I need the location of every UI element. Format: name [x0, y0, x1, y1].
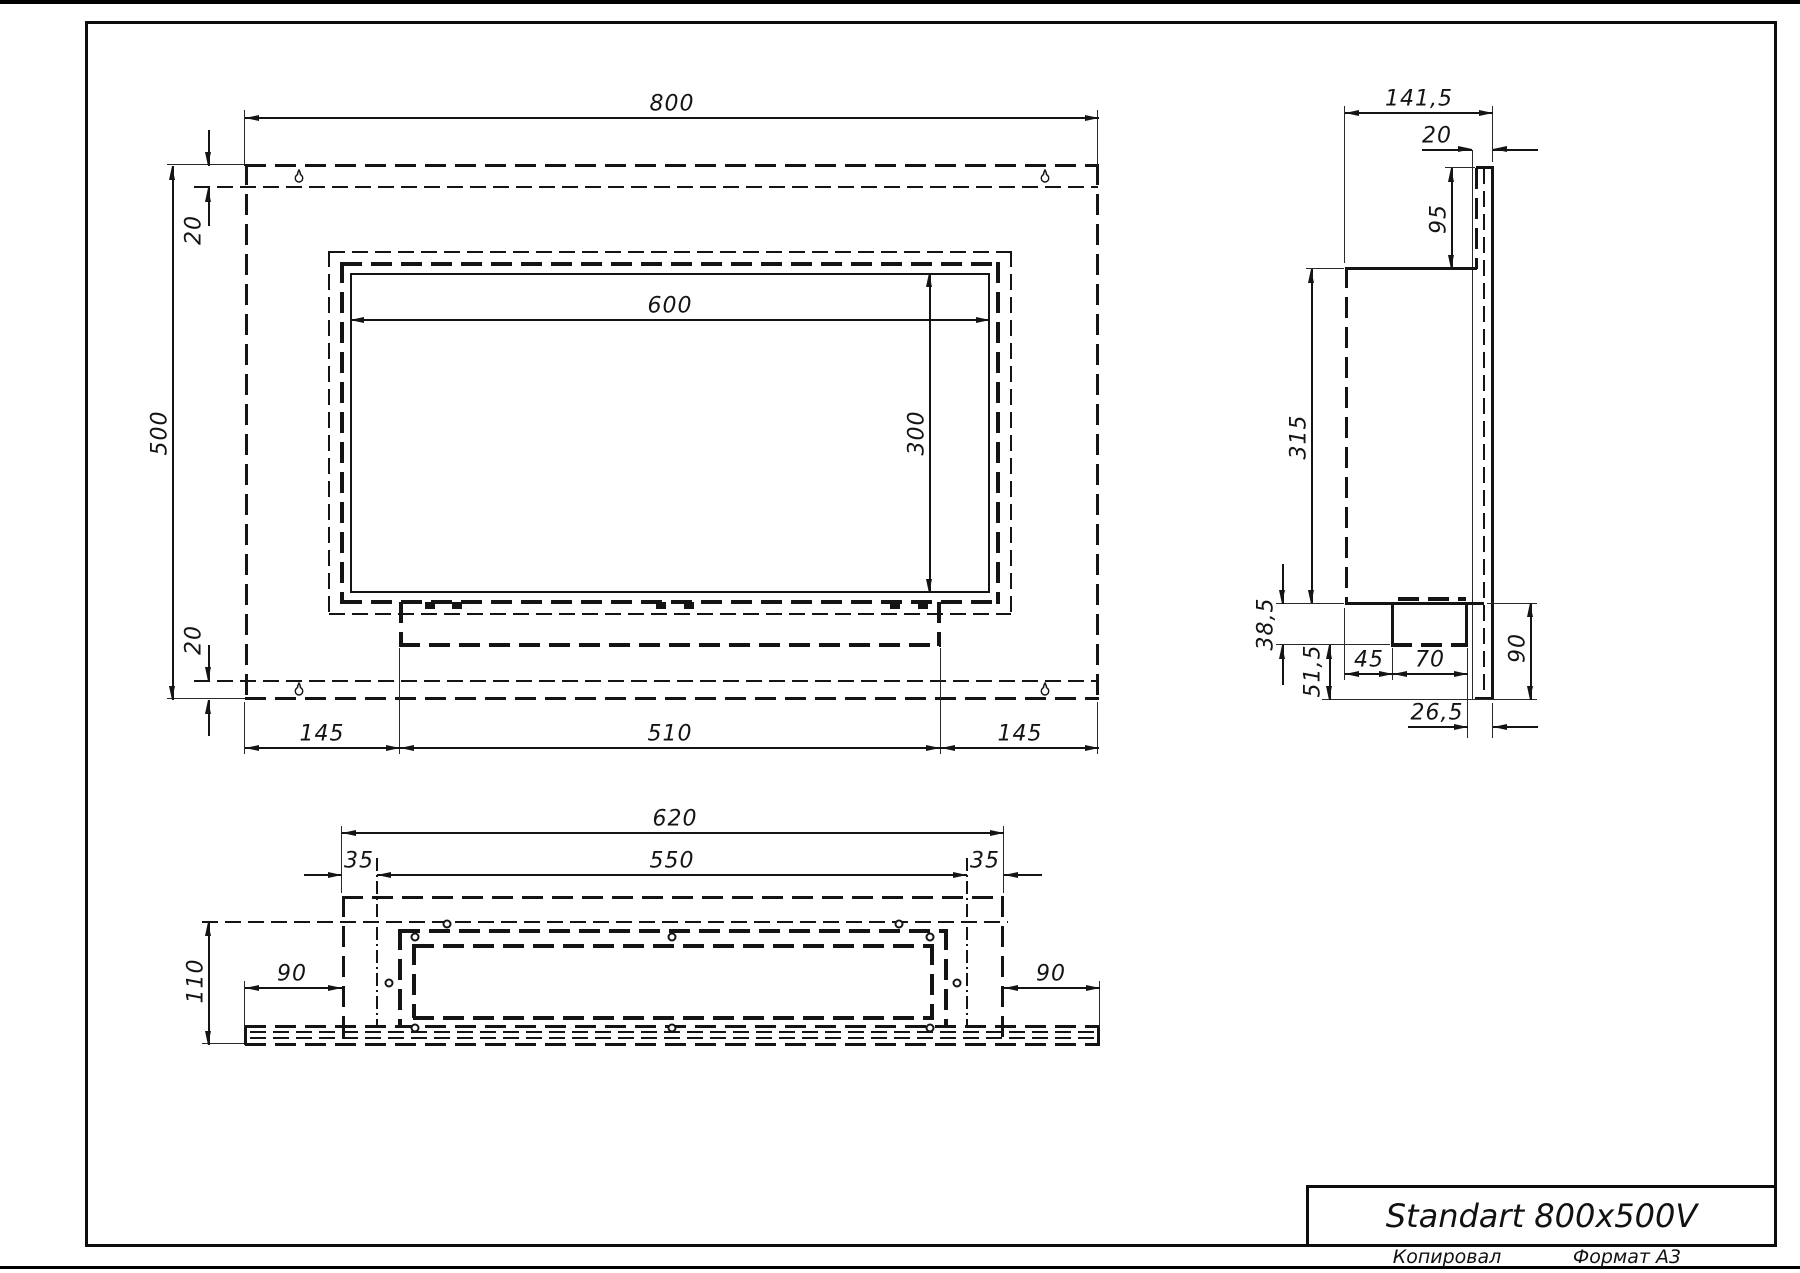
bottom-box-left-edge — [342, 896, 345, 1045]
arrowhead — [990, 830, 1004, 836]
side-body-bottom-edge — [1345, 602, 1484, 605]
arrowhead — [1326, 645, 1332, 659]
dim-back-offset: 26,5 — [1411, 701, 1464, 726]
bottom-box-top-edge — [342, 896, 1004, 899]
arrowhead — [205, 700, 211, 714]
side-bracket-plane-line — [1472, 150, 1473, 700]
arrowhead — [1493, 724, 1507, 730]
copied-label: Копировал — [1393, 1246, 1502, 1268]
arrowhead — [1448, 255, 1454, 269]
screw-hole — [926, 1024, 935, 1033]
dim-overall-depth: 141,5 — [1385, 87, 1453, 112]
keyhole-hanger-icon — [1039, 682, 1052, 698]
dim-top-inset: 20 — [182, 215, 207, 245]
bottom-opening-inner-frame — [412, 944, 416, 1018]
bottom-scan-bar — [0, 1266, 1800, 1269]
screw-hole — [953, 979, 962, 988]
arrowhead — [1493, 146, 1507, 152]
extension-line — [1344, 106, 1345, 263]
opening-outer-frame — [329, 251, 1011, 253]
arrowhead — [245, 985, 259, 991]
burner-tray-outline — [399, 643, 941, 647]
opening-outer-frame — [329, 613, 1011, 615]
bottom-opening-inner-frame — [413, 1016, 934, 1020]
dim-margin-left: 35 — [344, 849, 374, 874]
mount-tab — [918, 602, 928, 609]
extension-line — [940, 648, 941, 754]
top-scan-bar — [0, 0, 1800, 4]
arrowhead — [328, 872, 342, 878]
dim-burner-depth: 70 — [1415, 648, 1445, 673]
arrowhead — [1004, 985, 1018, 991]
arrowhead — [1326, 686, 1332, 700]
screw-hole — [668, 933, 677, 942]
arrowhead — [1279, 645, 1285, 659]
arrowhead — [169, 686, 175, 700]
mount-tab — [656, 602, 666, 609]
arrowhead — [1279, 590, 1285, 604]
arrowhead — [1345, 110, 1359, 116]
drawing-title: Standart 800x500V — [1386, 1197, 1698, 1235]
bottom-opening-frame — [398, 929, 402, 1025]
arrowhead — [926, 273, 932, 287]
firebox-hidden-outline — [996, 262, 1000, 604]
firebox-hidden-outline — [341, 600, 999, 604]
dim-bracket-gap: 20 — [1422, 124, 1452, 149]
dim-opening-width-bottom: 550 — [650, 849, 695, 874]
arrowhead — [386, 745, 400, 751]
screw-hole — [895, 920, 904, 929]
dim-bottom-center: 510 — [648, 722, 693, 747]
keyhole-hanger-icon — [293, 682, 306, 698]
drawing-sheet: Standart 800x500V Копировал Формат А3 — [0, 0, 1800, 1273]
bottom-depth-reference-line — [202, 921, 1008, 923]
burner-tray-outline — [937, 602, 941, 646]
arrowhead — [205, 188, 211, 202]
arrowhead — [1458, 146, 1472, 152]
extension-line — [1344, 608, 1345, 680]
arrowhead — [1004, 872, 1018, 878]
arrowhead — [1527, 686, 1533, 700]
bottom-strip-bottom-edge — [245, 1043, 1100, 1046]
dim-overall-height: 500 — [148, 411, 173, 456]
front-panel-bottom-edge — [245, 697, 1099, 700]
dimension-line — [245, 747, 1099, 749]
firebox-hidden-outline — [340, 262, 344, 604]
front-panel-right-edge — [1096, 164, 1099, 700]
bottom-opening-inner-frame — [930, 944, 934, 1018]
extension-line — [1276, 644, 1390, 645]
format-label: Формат А3 — [1573, 1246, 1681, 1268]
firebox-opening — [350, 273, 990, 593]
arrowhead — [169, 166, 175, 180]
mount-tab — [890, 602, 900, 609]
dim-overall-width: 800 — [650, 92, 695, 117]
dimension-line — [342, 832, 1004, 834]
arrowhead — [1085, 745, 1099, 751]
bottom-opening-frame — [944, 929, 948, 1025]
side-burner-back — [1465, 602, 1468, 645]
arrowhead — [400, 745, 414, 751]
screw-hole — [668, 1024, 677, 1033]
dim-lower-gap: 51,5 — [1301, 645, 1326, 698]
dim-front-offset: 45 — [1354, 648, 1384, 673]
dimension-line — [1345, 112, 1493, 114]
extension-line — [1276, 603, 1344, 604]
arrowhead — [1308, 269, 1314, 283]
arrowhead — [1085, 115, 1099, 121]
arrowhead — [1086, 985, 1100, 991]
dim-opening-width: 600 — [648, 294, 693, 319]
bottom-opening-inner-frame — [413, 944, 934, 948]
dim-wing-right: 90 — [1036, 962, 1066, 987]
arrowhead — [350, 317, 364, 323]
arrowhead — [1527, 603, 1533, 617]
front-bottom-fold-line — [194, 680, 1098, 682]
dim-margin-right: 35 — [970, 849, 1000, 874]
front-top-fold-line — [194, 186, 1098, 188]
dimension-line — [377, 874, 967, 876]
dim-bottom-right: 145 — [998, 722, 1043, 747]
keyhole-hanger-icon — [1039, 169, 1052, 185]
arrowhead — [205, 1031, 211, 1045]
dim-bottom-left: 145 — [300, 722, 345, 747]
side-back-panel-front-face — [1483, 168, 1485, 700]
opening-axis-line — [376, 858, 378, 1027]
arrowhead — [245, 745, 259, 751]
side-back-panel-back-face — [1491, 168, 1494, 700]
mount-tab — [452, 602, 462, 609]
arrowhead — [1393, 671, 1407, 677]
front-panel-top-edge — [245, 164, 1099, 167]
dim-box-width: 620 — [653, 807, 698, 832]
dimension-line — [350, 319, 990, 321]
arrowhead — [205, 922, 211, 936]
screw-hole — [443, 920, 452, 929]
side-back-panel-top-cap — [1476, 166, 1494, 169]
dimension-line — [245, 117, 1099, 119]
opening-outer-frame — [328, 251, 330, 615]
dim-opening-height: 300 — [905, 411, 930, 456]
title-block: Standart 800x500V — [1306, 1185, 1777, 1247]
bottom-strip-inner-line — [250, 1037, 1095, 1039]
opening-outer-frame — [1010, 251, 1012, 615]
arrowhead — [205, 152, 211, 166]
dim-burner-drop: 38,5 — [1254, 598, 1279, 651]
extension-line — [399, 648, 400, 754]
arrowhead — [328, 985, 342, 991]
bottom-box-right-edge — [1001, 896, 1004, 1045]
bottom-strip-right-cap — [1097, 1025, 1100, 1045]
extension-line — [1003, 826, 1004, 893]
arrowhead — [245, 115, 259, 121]
side-body-front-edge — [1345, 267, 1348, 605]
arrowhead — [976, 317, 990, 323]
side-bracket-face — [1475, 168, 1478, 269]
mount-tab — [684, 602, 694, 609]
firebox-hidden-outline — [341, 262, 999, 266]
burner-tray-outline — [399, 602, 403, 646]
arrowhead — [342, 830, 356, 836]
opening-axis-line — [966, 858, 968, 1027]
dim-bottom-inset: 20 — [182, 625, 207, 655]
arrowhead — [205, 667, 211, 681]
mount-tab — [425, 602, 435, 609]
screw-hole — [411, 933, 420, 942]
side-burner-front — [1391, 602, 1394, 645]
arrowhead — [926, 579, 932, 593]
screw-hole — [411, 1024, 420, 1033]
dim-box-depth: 110 — [184, 959, 209, 1004]
arrowhead — [1308, 590, 1314, 604]
side-body-top-edge — [1345, 267, 1477, 270]
arrowhead — [941, 745, 955, 751]
arrowhead — [1479, 110, 1493, 116]
front-panel-left-edge — [245, 164, 248, 700]
bottom-strip-left-cap — [244, 1025, 247, 1045]
extension-line — [1492, 703, 1493, 738]
arrowhead — [377, 872, 391, 878]
extension-line — [167, 698, 245, 699]
dim-panel-below: 90 — [1506, 633, 1531, 663]
arrowhead — [1448, 168, 1454, 182]
arrowhead — [926, 745, 940, 751]
dim-body-height: 315 — [1287, 415, 1312, 460]
side-burner-bottom — [1391, 643, 1468, 647]
dim-panel-above: 95 — [1427, 204, 1452, 234]
keyhole-hanger-icon — [293, 169, 306, 185]
screw-hole — [926, 933, 935, 942]
arrowhead — [953, 872, 967, 878]
arrowhead — [1454, 671, 1468, 677]
side-burner-flange — [1398, 597, 1466, 601]
extension-line — [341, 826, 342, 893]
dim-wing-left: 90 — [277, 962, 307, 987]
screw-hole — [385, 979, 394, 988]
